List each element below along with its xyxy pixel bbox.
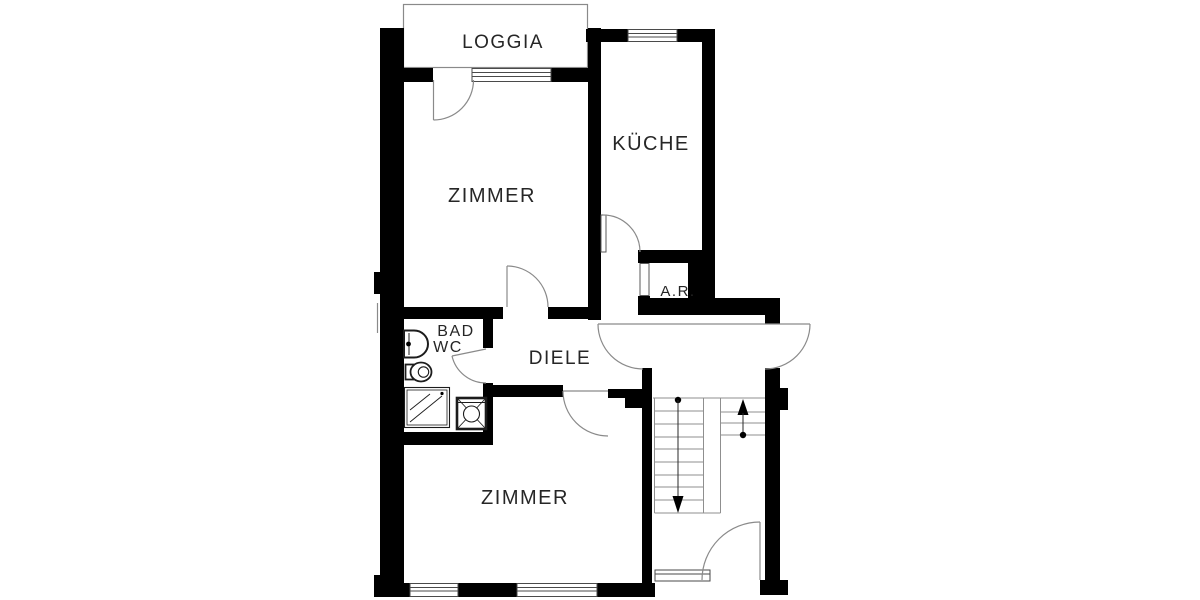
room-label-loggia: LOGGIA [462, 32, 544, 53]
toilet-icon [406, 363, 432, 382]
door-apartment-entry [598, 324, 643, 369]
door-zimmer-top [507, 266, 548, 307]
door-neighbor-entry [765, 324, 810, 369]
room-label-abstellraum: A.R. [660, 283, 695, 300]
sink-icon [404, 331, 428, 358]
room-label-zimmer-bottom: ZIMMER [481, 487, 569, 509]
room-label-diele: DIELE [529, 348, 591, 369]
floor-plan-canvas: LOGGIA ZIMMER KÜCHE A.R. BAD WC DIELE ZI… [0, 0, 1200, 600]
shower-icon [405, 388, 450, 428]
room-label-bad: BAD [437, 323, 474, 340]
kitchen-window [628, 30, 677, 42]
washing-machine-icon [457, 398, 486, 429]
bottom-window-right [517, 584, 597, 597]
staircase [653, 397, 765, 513]
loggia-window [472, 69, 551, 82]
door-abstellraum [640, 264, 649, 296]
walls [374, 28, 788, 597]
stairs-up-arrow [738, 399, 749, 438]
door-zimmer-top-loggia [434, 80, 474, 120]
room-label-kueche: KÜCHE [612, 133, 690, 155]
door-zimmer-bottom [563, 391, 608, 436]
room-label-wc: WC [433, 339, 463, 356]
door-kueche [601, 215, 640, 252]
stairs-down-arrow [673, 397, 684, 513]
door-building-entry [702, 522, 760, 580]
floor-plan-drawing: LOGGIA ZIMMER KÜCHE A.R. BAD WC DIELE ZI… [0, 0, 1200, 600]
bottom-window-left [410, 584, 458, 597]
room-label-zimmer-top: ZIMMER [448, 185, 536, 207]
